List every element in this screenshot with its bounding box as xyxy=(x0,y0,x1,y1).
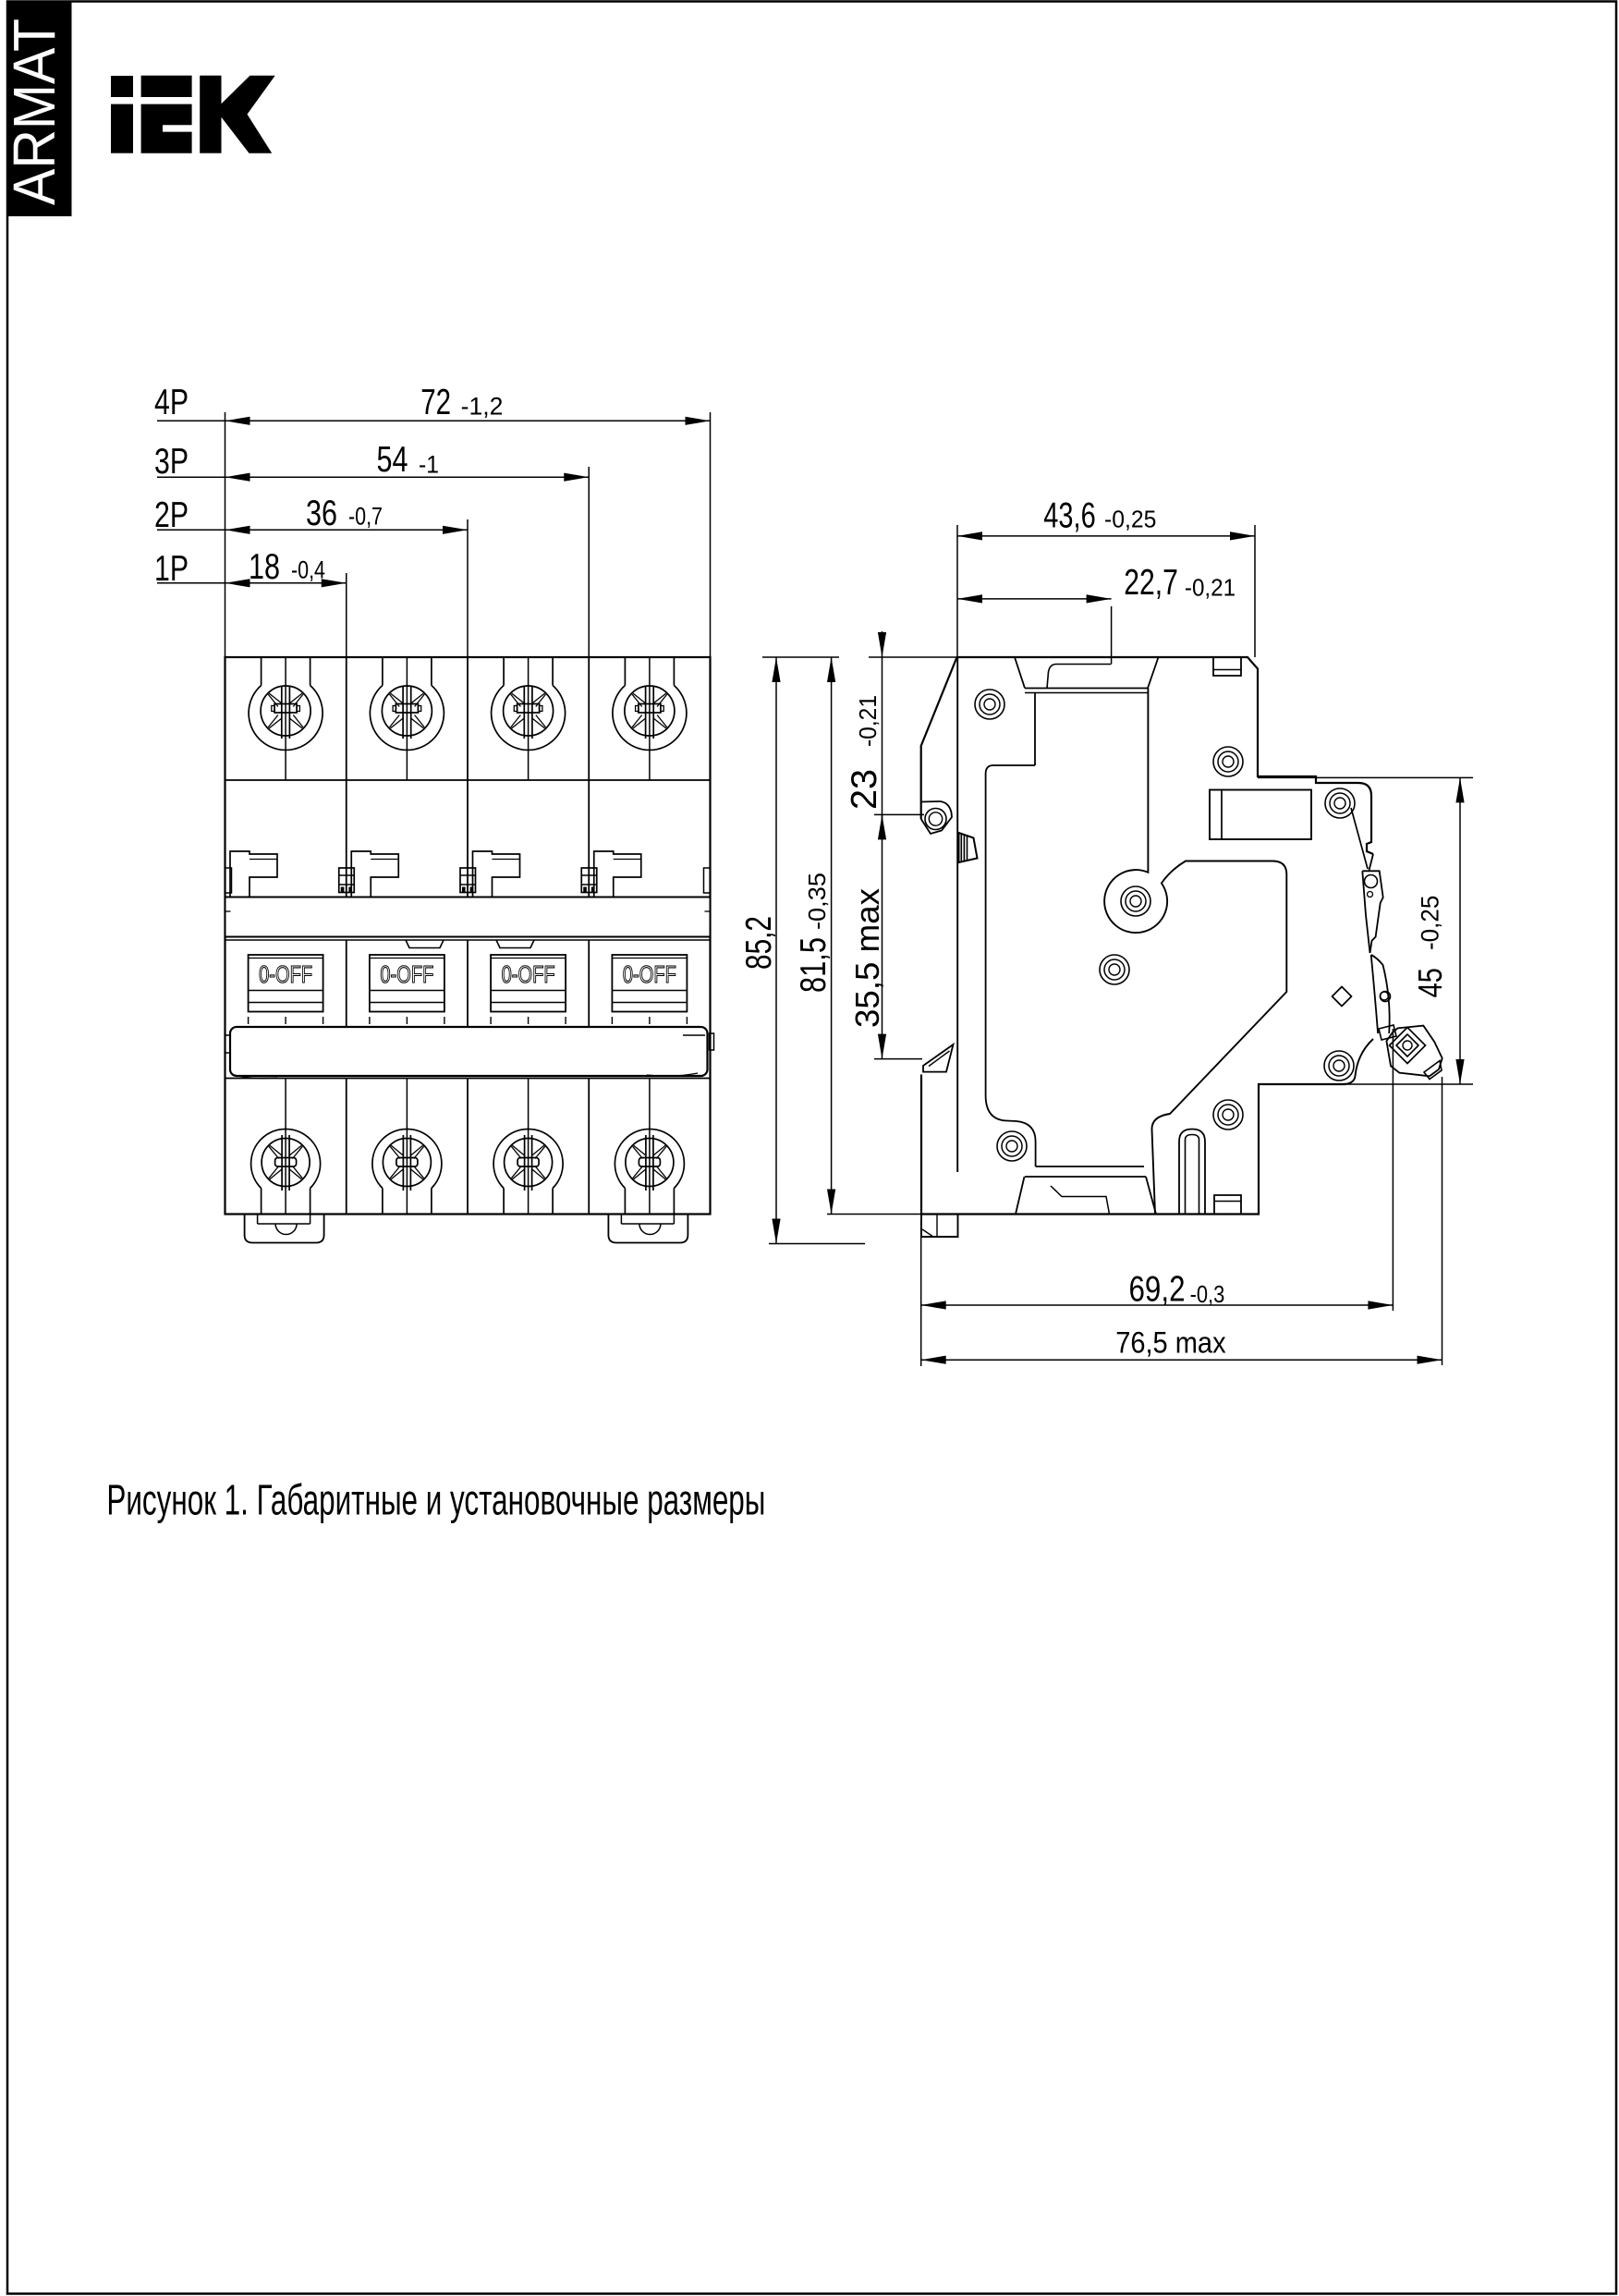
svg-text:ARMAT: ARMAT xyxy=(1,18,67,205)
svg-text:43,6: 43,6 xyxy=(1043,496,1095,536)
svg-text:-0,25: -0,25 xyxy=(1104,506,1156,533)
svg-text:76,5 max: 76,5 max xyxy=(1115,1326,1225,1360)
svg-text:-0,7: -0,7 xyxy=(348,503,383,531)
svg-text:0-OFF: 0-OFF xyxy=(380,960,433,988)
svg-text:-0,3: -0,3 xyxy=(1190,1280,1225,1308)
svg-text:85,2: 85,2 xyxy=(739,916,779,970)
svg-text:0-OFF: 0-OFF xyxy=(623,960,676,988)
svg-text:22,7: 22,7 xyxy=(1124,563,1178,603)
svg-text:54: 54 xyxy=(377,440,408,480)
svg-text:-1,2: -1,2 xyxy=(461,393,504,421)
svg-text:0-OFF: 0-OFF xyxy=(259,960,312,988)
svg-text:-0,21: -0,21 xyxy=(854,695,882,747)
svg-text:-0,21: -0,21 xyxy=(1185,573,1236,601)
svg-text:-0,25: -0,25 xyxy=(1417,896,1444,950)
svg-text:18: 18 xyxy=(249,547,280,587)
svg-text:2P: 2P xyxy=(154,495,189,535)
svg-text:23: 23 xyxy=(845,769,884,810)
svg-text:-0,4: -0,4 xyxy=(291,556,325,584)
svg-text:36: 36 xyxy=(306,494,337,533)
svg-text:1P: 1P xyxy=(154,549,189,589)
svg-text:45: 45 xyxy=(1411,968,1449,997)
svg-text:-1: -1 xyxy=(419,451,439,479)
svg-text:3P: 3P xyxy=(154,442,189,482)
svg-text:81,5: 81,5 xyxy=(794,937,834,993)
svg-text:4P: 4P xyxy=(154,383,189,422)
svg-text:-0,35: -0,35 xyxy=(803,873,831,930)
svg-text:0-OFF: 0-OFF xyxy=(502,960,555,988)
svg-text:35,5 max: 35,5 max xyxy=(848,888,886,1028)
svg-text:Рисунок 1. Габаритные и устано: Рисунок 1. Габаритные и установочные раз… xyxy=(106,1476,765,1524)
svg-text:72: 72 xyxy=(420,383,451,422)
svg-text:69,2: 69,2 xyxy=(1129,1270,1186,1310)
